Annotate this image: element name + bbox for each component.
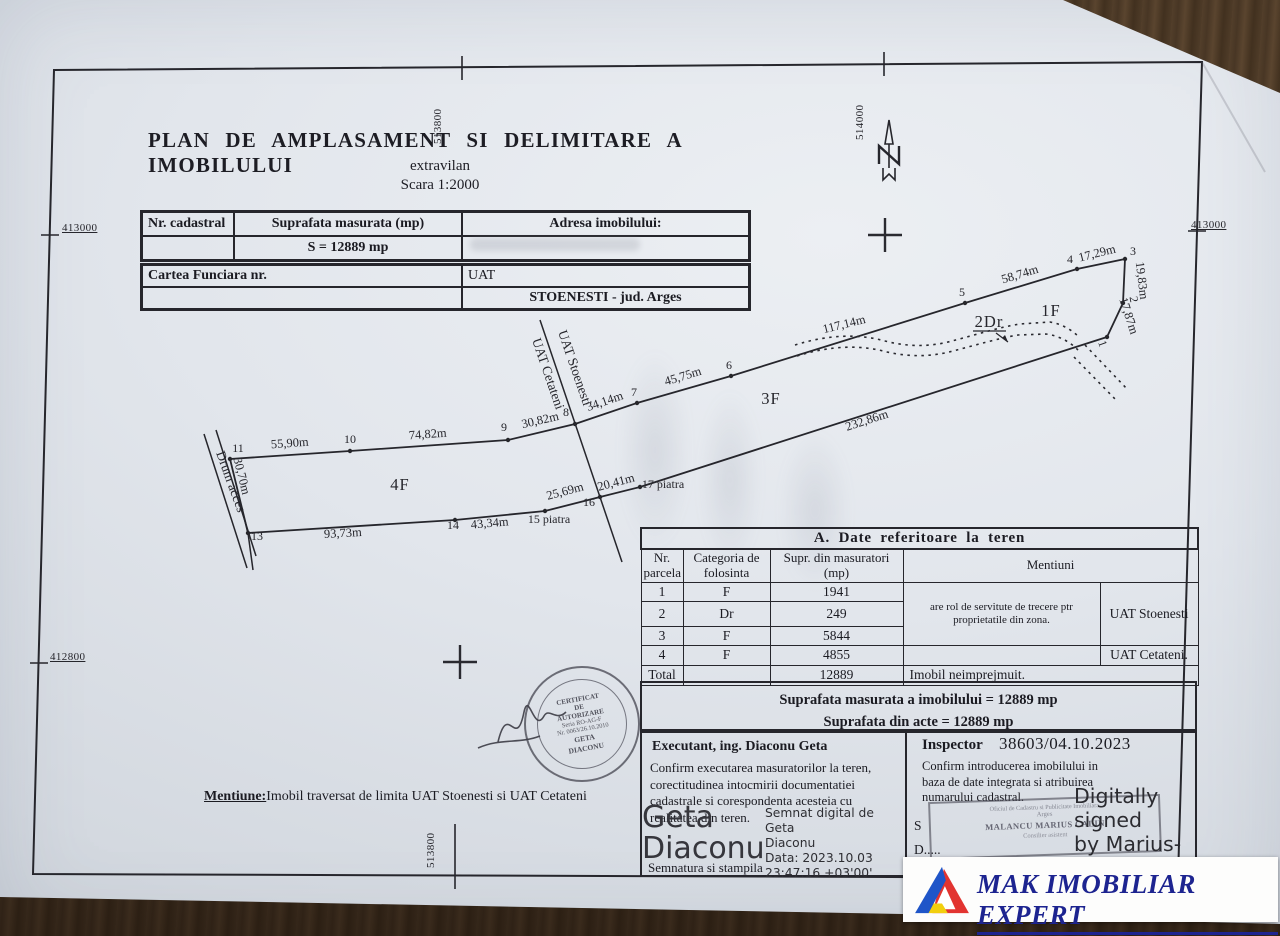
row-categoria: F [683,582,770,601]
erased-text-smudge [470,238,640,251]
row-nr: 4 [641,645,683,665]
edge-measurement-label: 232,86m [844,407,891,434]
edge-measurement-label: 43,34m [470,514,509,531]
edge-measurement-label: 55,90m [270,435,309,452]
mentiune-note: Mentiune:Imobil traversat de limita UAT … [204,789,587,805]
scanned-cadastral-plan-photo: 55,90m74,82m30,82m34,14m45,75m117,14m58,… [0,0,1280,936]
point-number-label: 5 [959,285,965,299]
parcel-region-label: 2Dr [975,312,1004,331]
empty-mention-cell [903,645,1100,665]
round-stamp-text: CERTIFICAT DE AUTORIZARE Seria RO-AG-F N… [530,672,634,776]
point-number-label: 11 [232,441,244,455]
point-number-label: 17 piatra [642,477,685,491]
row-categoria: F [683,626,770,645]
point-number-label: 16 [583,495,595,509]
dirt-road-dotted [795,322,1128,400]
uat-cetateni-cell: UAT Cetateni. [1100,645,1198,665]
row-nr: 2 [641,601,683,626]
point-number-label: 13 [251,529,263,543]
edge-measurement-label: 74,82m [408,426,447,443]
row-nr: 1 [641,582,683,601]
inspector-pane: Inspector 38603/04.10.2023 Confirm intro… [905,733,1201,875]
row-suprafata: 249 [770,601,903,626]
parcel-region-label: 3F [761,389,780,408]
parcel-region-label: 4F [390,475,409,494]
measured-areas-block: Suprafata masurata a imobilului = 12889 … [640,681,1197,731]
row-suprafata: 4855 [770,645,903,665]
uat-stoenesti-cell: UAT Stoenesti [1100,582,1198,645]
point-number-label: 4 [1067,252,1073,266]
mak-logo-band: MAK IMOBILIAR EXPERT [903,857,1278,922]
suprafata-masurata-line: Suprafata masurata a imobilului = 12889 … [642,690,1195,712]
edge-measurement-label: 45,75m [663,364,704,389]
north-arrow-icon [879,120,899,180]
table-a-title: A. Date referitoare la teren [641,528,1198,549]
mak-logo-text: MAK IMOBILIAR EXPERT [977,869,1278,935]
inspector-registration-number: 38603/04.10.2023 [999,734,1131,754]
parcel-region-labels: 4F3F1F2Dr [390,301,1060,494]
parcel-region-label: 1F [1041,301,1060,320]
servitute-note: are rol de servitute de trecere ptr prop… [903,582,1100,645]
stamp-line: DIACONU [568,741,605,756]
row-categoria: Dr [683,601,770,626]
point-number-label: 15 piatra [528,512,571,526]
edge-measurement-label: 25,69m [545,479,585,502]
header-nr-parcela: Nr. parcela [641,549,683,582]
scale-label: Scara 1:2000 [300,177,580,194]
semnatura-partial-label: S [914,818,922,834]
point-number-label: 7 [631,385,637,399]
point-number-label: 9 [501,420,507,434]
cartea-funciara-header: Cartea Funciara nr. [142,265,462,287]
executant-heading: Executant, ing. Diaconu Geta [652,739,827,755]
executant-inspector-block: Executant, ing. Diaconu Geta Confirm exe… [640,731,1197,877]
mentiune-label: Mentiune: [204,789,266,804]
uat-value: STOENESTI - jud. Arges [462,287,749,309]
adresa-header: Adresa imobilului: [462,212,749,236]
paper-fold-crease [1202,62,1265,172]
subtitle-extravilan: extravilan [300,158,580,175]
header-suprafata: Supr. din masuratori (mp) [770,549,903,582]
edge-measurement-label: 117,14m [821,312,867,336]
nr-cadastral-header: Nr. cadastral [142,212,234,236]
cartea-funciara-value [142,287,462,309]
mentiune-text: Imobil traversat de limita UAT Stoenesti… [266,789,587,804]
row-categoria: F [683,645,770,665]
coord-label-bottom: 513800 [425,833,437,868]
digital-signature-details: Semnat digital de Geta Diaconu Data: 202… [765,806,905,881]
table-a-date-teren: A. Date referitoare la teren Nr. parcela… [640,527,1199,686]
suprafata-header: Suprafata masurata (mp) [234,212,462,236]
edge-measurement-label: 30,82m [520,409,560,431]
header-categoria: Categoria de folosinta [683,549,770,582]
edge-measurement-label: 93,73m [324,525,363,541]
mak-pyramid-logo-icon [913,865,971,915]
digital-signature-name: Geta Diaconu [642,803,765,865]
point-number-label: 2 [1127,295,1142,303]
point-number-label: 3 [1130,244,1136,258]
inspector-heading: Inspector [922,737,983,754]
cadastral-id-table: Nr. cadastral Suprafata masurata (mp) Ad… [140,210,751,262]
coord-label-left-bottom: 412800 [50,651,85,663]
nr-cadastral-value [142,236,234,260]
coord-label-left-top: 413000 [62,222,97,234]
row-suprafata: 5844 [770,626,903,645]
executant-pane: Executant, ing. Diaconu Geta Confirm exe… [642,733,905,875]
point-number-label: 10 [344,432,356,446]
row-nr: 3 [641,626,683,645]
row-suprafata: 1941 [770,582,903,601]
header-mentiuni: Mentiuni [903,549,1198,582]
coord-label-right: 413000 [1191,219,1226,231]
edge-measurement-label: 19,83m [1133,261,1152,301]
point-number-label: 14 [447,518,459,532]
suprafata-value: S = 12889 mp [234,236,462,260]
cartea-funciara-table: Cartea Funciara nr. UAT STOENESTI - jud.… [140,263,751,311]
point-number-label: 6 [726,358,732,372]
coord-label-top-right: 514000 [854,105,866,140]
uat-header: UAT [462,265,749,287]
